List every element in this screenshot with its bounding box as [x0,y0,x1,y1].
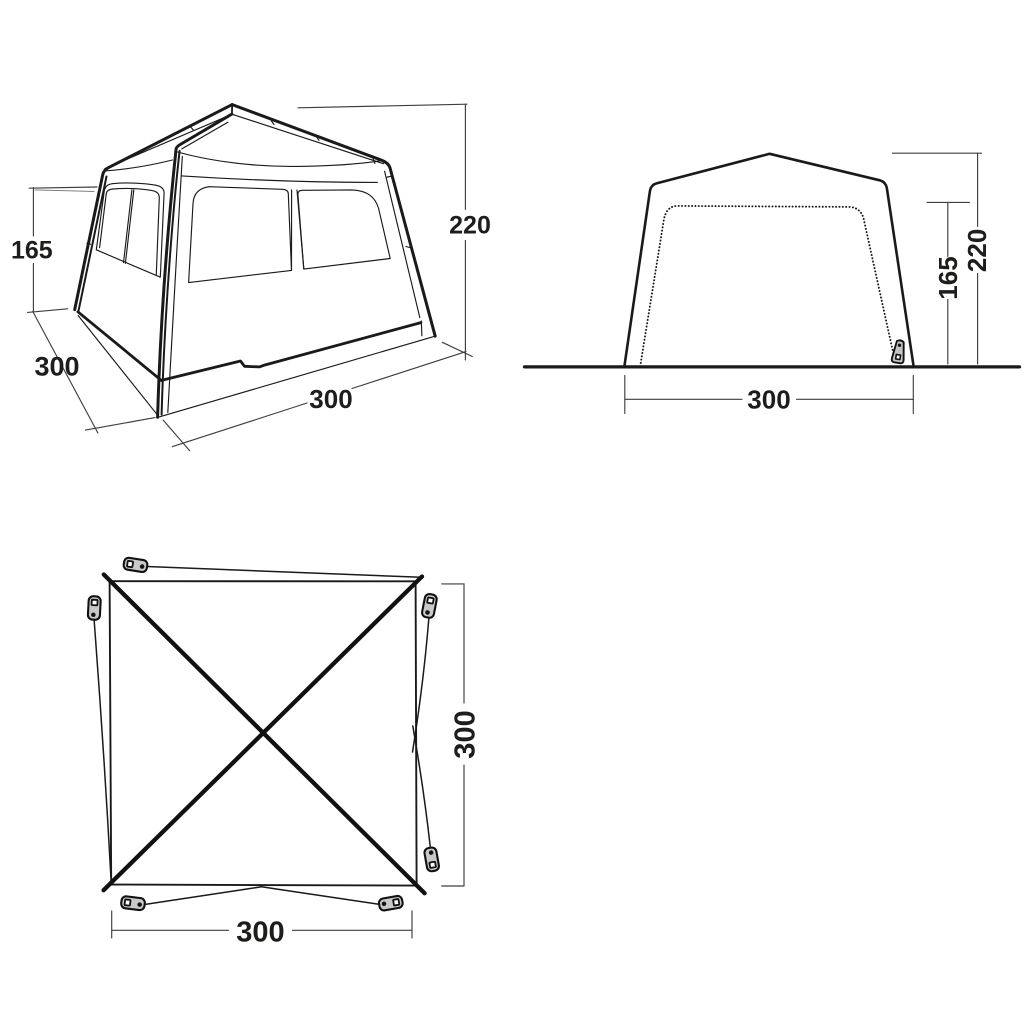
svg-text:300: 300 [747,384,790,414]
svg-text:300: 300 [449,710,481,758]
svg-text:300: 300 [309,384,352,414]
svg-text:300: 300 [236,916,284,948]
svg-text:300: 300 [34,351,79,381]
svg-text:165: 165 [11,236,53,264]
svg-text:220: 220 [449,211,491,239]
svg-text:165: 165 [933,256,963,299]
svg-text:220: 220 [962,229,992,272]
